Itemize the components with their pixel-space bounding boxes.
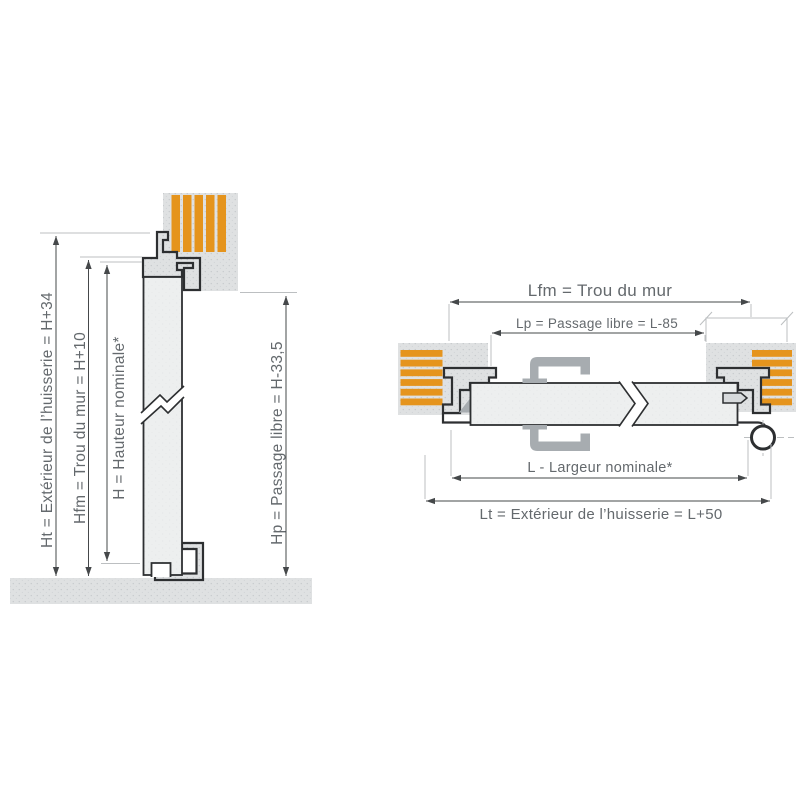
spreader-bracket-top <box>523 357 591 383</box>
brick-hatching-top <box>172 195 227 252</box>
spreader-bracket-bottom <box>523 425 591 451</box>
door-bottom-groove <box>152 563 171 577</box>
dim-label-hp: Hp = Passage libre = H-33,5 <box>269 341 286 545</box>
dim-label-lp: Lp = Passage libre = L-85 <box>516 316 678 331</box>
dim-label-h: H = Hauteur nominale* <box>111 336 128 500</box>
dim-label-l: L - Largeur nominale* <box>527 460 672 476</box>
vertical-section-diagram: Ht = Extérieur de l’huisserie = H+34 Hfm… <box>10 193 312 604</box>
horizontal-section-diagram: Lfm = Trou du mur Lp = Passage libre = L… <box>398 281 796 523</box>
technical-drawing: Ht = Extérieur de l’huisserie = H+34 Hfm… <box>0 0 800 800</box>
latch-bolt <box>723 393 747 403</box>
door-leaf-horizontal <box>471 383 738 425</box>
floor-slab <box>10 578 312 604</box>
dim-label-hfm: Hfm = Trou du mur = H+10 <box>72 332 89 524</box>
phantom-outline <box>700 312 793 342</box>
hinge-symbol <box>744 420 794 456</box>
dim-label-ht: Ht = Extérieur de l’huisserie = H+34 <box>39 292 56 548</box>
door-leaf-vertical <box>144 277 183 575</box>
dim-label-lfm: Lfm = Trou du mur <box>528 281 673 300</box>
door-frame-dimension-sheet: Ht = Extérieur de l’huisserie = H+34 Hfm… <box>0 0 800 800</box>
dim-label-lt: Lt = Extérieur de l’huisserie = L+50 <box>479 506 722 523</box>
